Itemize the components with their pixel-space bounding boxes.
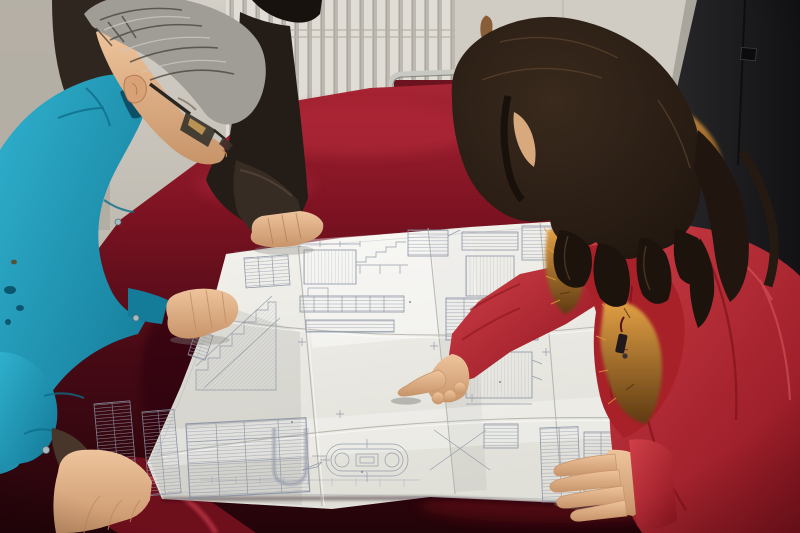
photo-vignette [0,0,800,533]
photo-blueprint-review [0,0,800,533]
scene-canvas [0,0,800,533]
